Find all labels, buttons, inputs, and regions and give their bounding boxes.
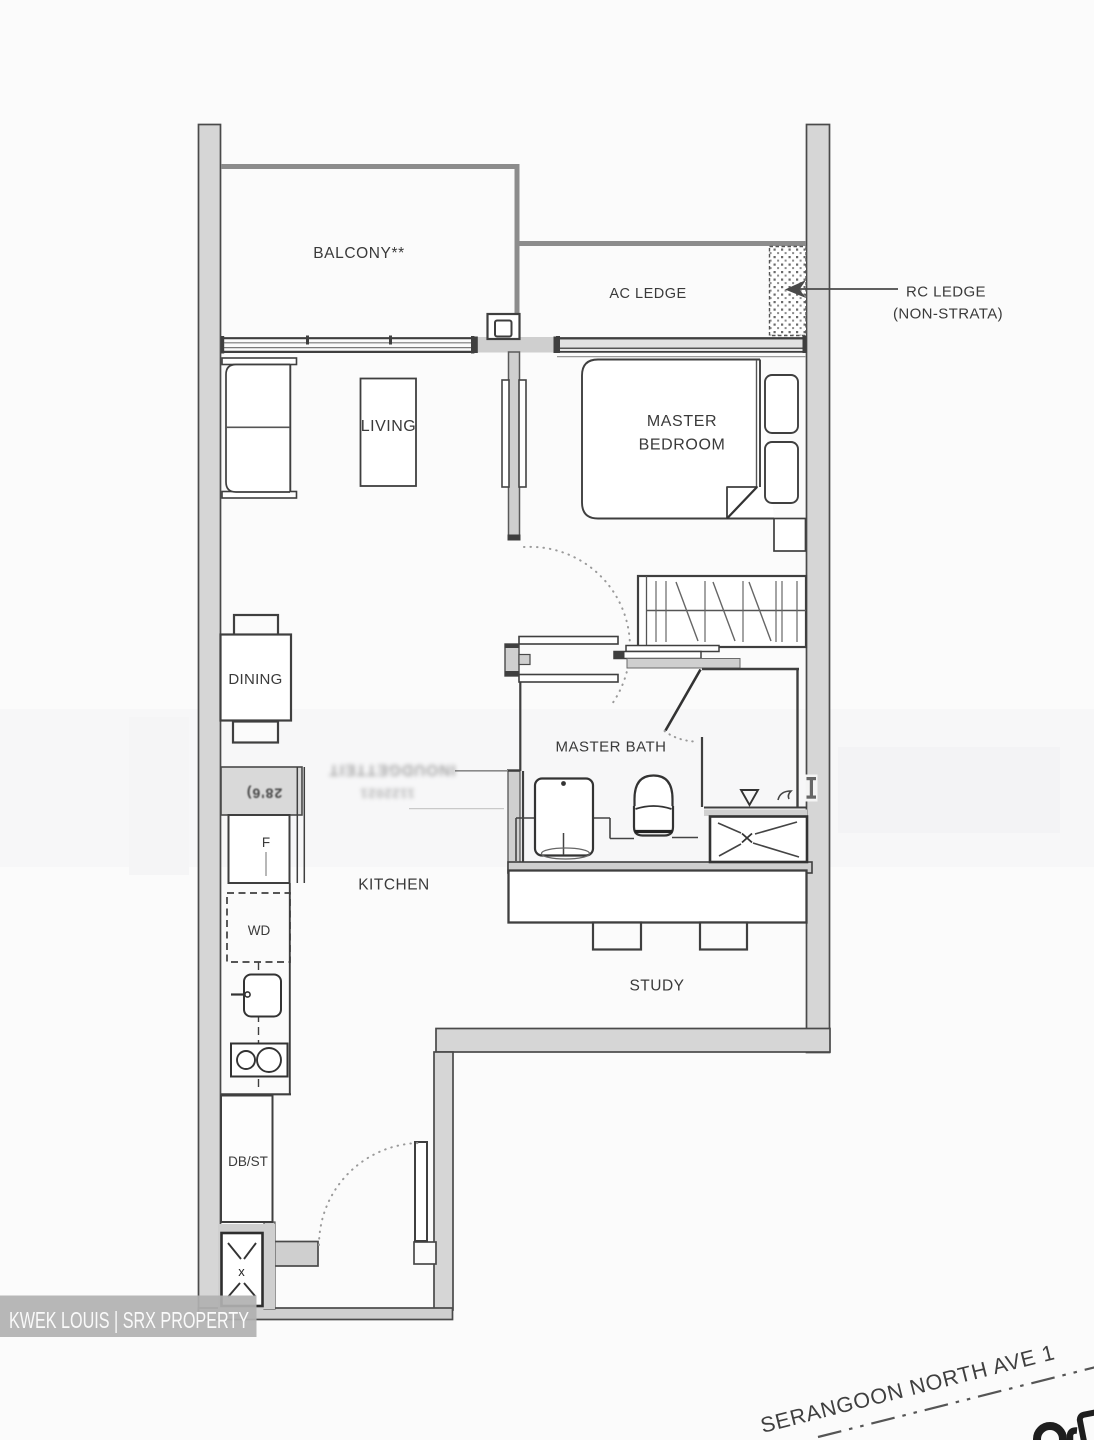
svg-text:MASTER BATH: MASTER BATH (555, 739, 666, 756)
svg-text:DINING: DINING (228, 671, 282, 688)
svg-text:BALCONY**: BALCONY** (313, 245, 405, 262)
svg-text:RC LEDGE: RC LEDGE (906, 284, 986, 301)
svg-text:KWEK LOUIS | SRX PROPERTY: KWEK LOUIS | SRX PROPERTY (9, 1307, 249, 1333)
svg-text:(NON-STRATA): (NON-STRATA) (893, 306, 1003, 323)
svg-text:x: x (238, 1264, 245, 1279)
svg-text:AC LEDGE: AC LEDGE (609, 286, 686, 302)
svg-text:F: F (262, 835, 270, 850)
svg-text:28'6): 28'6) (246, 786, 282, 802)
svg-text:KITCHEN: KITCHEN (358, 877, 430, 894)
svg-text:1122021: 1122021 (360, 786, 415, 800)
svg-text:WD: WD (248, 923, 271, 938)
svg-text:INOUDGETTEIT: INOUDGETTEIT (328, 761, 455, 778)
svg-text:DB/ST: DB/ST (228, 1154, 268, 1169)
svg-text:MASTER: MASTER (647, 413, 717, 430)
svg-text:LIVING: LIVING (361, 418, 416, 435)
svg-text:BEDROOM: BEDROOM (639, 437, 726, 454)
svg-text:STUDY: STUDY (629, 978, 684, 995)
